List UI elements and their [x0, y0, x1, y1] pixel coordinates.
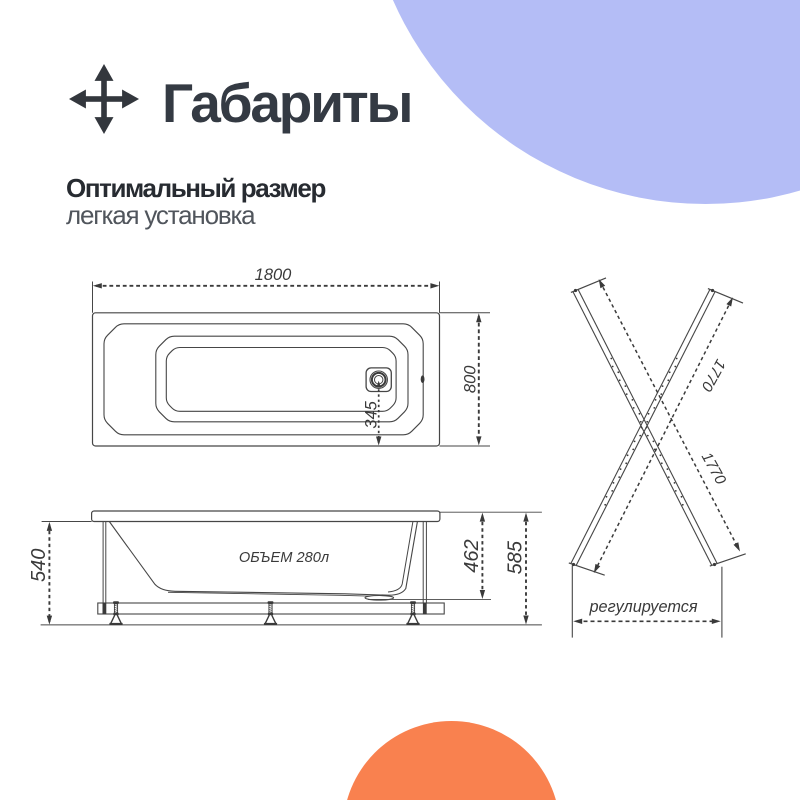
svg-text:1770: 1770 [698, 450, 730, 488]
svg-text:540: 540 [28, 549, 50, 582]
svg-text:462: 462 [461, 539, 483, 572]
svg-text:585: 585 [505, 540, 527, 574]
svg-text:ОБЪЕМ 280л: ОБЪЕМ 280л [239, 550, 329, 566]
svg-text:1770: 1770 [697, 356, 729, 394]
svg-text:345: 345 [362, 400, 380, 428]
svg-text:800: 800 [461, 365, 479, 393]
svg-text:регулируется: регулируется [588, 598, 697, 616]
svg-text:1800: 1800 [255, 266, 293, 284]
